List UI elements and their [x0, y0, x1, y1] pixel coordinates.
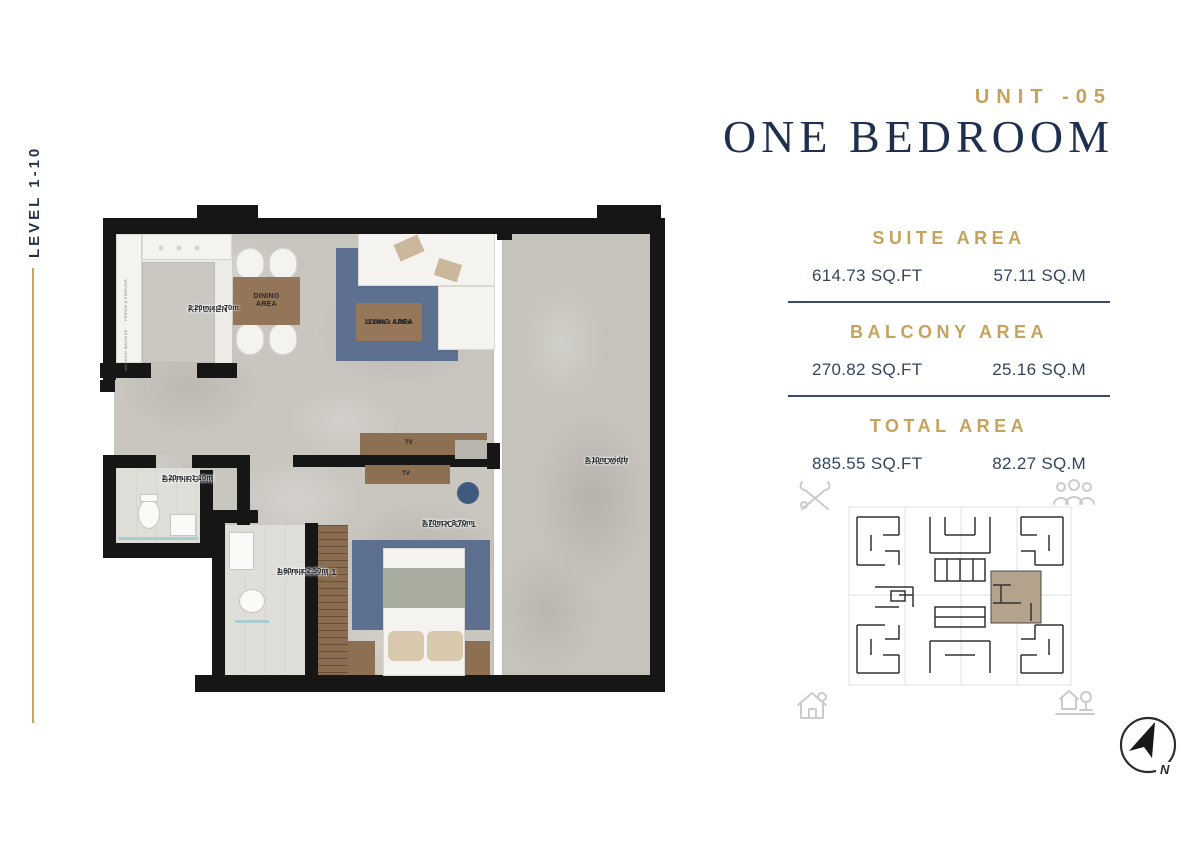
dining-chair [236, 323, 264, 355]
suite-area-sqft: 614.73 SQ.FT [812, 266, 922, 286]
toilet-tank [140, 494, 158, 502]
key-plan [835, 495, 1085, 695]
compass-north-label: N [1160, 762, 1170, 777]
page-title: ONE BEDROOM [723, 110, 1114, 163]
tv-label: TV [405, 440, 413, 446]
nightstand [464, 641, 490, 675]
balcony-area-section: BALCONY AREA 270.82 SQ.FT 25.16 SQ.M [788, 322, 1110, 397]
tv-label: TV [402, 471, 410, 477]
dining-chair [269, 248, 297, 280]
wall [100, 380, 115, 392]
room-dims-kitchen: 2.20m x 2.70m [188, 303, 239, 314]
suite-area-heading: SUITE AREA [788, 228, 1110, 249]
total-area-sqm: 82.27 SQ.M [992, 454, 1086, 474]
sofa-chaise [438, 286, 495, 350]
room-dims-bathroom: 2.20m x 1.10m [162, 473, 213, 484]
wall [487, 443, 500, 469]
toilet-icon [239, 589, 265, 613]
dining-chair [269, 323, 297, 355]
living-area-rug-label: LIVING AREA 5.20m x 4.00m [356, 303, 422, 341]
sink-icon [170, 514, 196, 536]
floorplan-brochure-page: LEVEL 1-10 UNIT -05 ONE BEDROOM SUITE AR… [0, 0, 1200, 852]
divider [788, 301, 1110, 303]
suite-area-sqm: 57.11 SQ.M [994, 266, 1086, 286]
room-dims-balcony: 3.10m width [585, 455, 628, 466]
nightstand [347, 641, 375, 675]
level-rail-line [32, 268, 34, 723]
sink-icon [229, 532, 254, 570]
room-dims-bedroom1: 3.70m x 3.70m [422, 518, 473, 529]
suite-area-section: SUITE AREA 614.73 SQ.FT 57.11 SQ.M [788, 228, 1110, 303]
community-park-icon [1053, 683, 1097, 726]
people-group-icon [1052, 478, 1096, 513]
shower-glass [235, 620, 269, 623]
kitchen-counter [116, 234, 142, 363]
wall [650, 218, 665, 690]
toilet-icon [138, 499, 160, 529]
wall [103, 218, 665, 234]
polo-mallets-icon [797, 478, 833, 517]
total-area-heading: TOTAL AREA [788, 416, 1110, 437]
dining-table: DINING AREA [233, 277, 300, 325]
area-summary-panel: SUITE AREA 614.73 SQ.FT 57.11 SQ.M BALCO… [788, 228, 1110, 489]
wall [112, 455, 156, 468]
room-label-dining: DINING AREA [245, 293, 289, 309]
dining-chair [236, 248, 264, 280]
stool [457, 482, 479, 504]
wall [597, 205, 661, 219]
shower-glass [118, 537, 198, 540]
unit-number-label: UNIT -05 [975, 86, 1112, 109]
bed-pillow [388, 631, 424, 661]
wall [212, 523, 225, 690]
balcony-area-sqft: 270.82 SQ.FT [812, 360, 922, 380]
kitchen-hob [142, 234, 232, 260]
house-icon [793, 688, 831, 727]
wall [212, 510, 258, 523]
wardrobe [318, 525, 348, 676]
highlighted-unit [991, 571, 1041, 623]
divider [788, 395, 1110, 397]
bed-pillow [427, 631, 463, 661]
level-range-label: LEVEL 1-10 [26, 146, 43, 258]
wall [497, 230, 512, 240]
wall [305, 523, 318, 690]
sofa [358, 231, 495, 286]
north-compass: N [1108, 706, 1188, 786]
wall [195, 675, 665, 692]
balcony-area-sqm: 25.16 SQ.M [992, 360, 1086, 380]
fridge-label: FRIDGE & FREEZER [123, 279, 128, 321]
room-dims-bathroom1: 1.60m x 2.50m [277, 566, 328, 577]
wall [103, 218, 116, 380]
washer-label: WASHING MACHINE [123, 329, 128, 371]
wall [103, 543, 213, 558]
wall [197, 205, 258, 219]
tv-panel [455, 440, 487, 459]
total-area-section: TOTAL AREA 885.55 SQ.FT 82.27 SQ.M [788, 416, 1110, 474]
compass-needle [1129, 722, 1155, 758]
balcony-area-heading: BALCONY AREA [788, 322, 1110, 343]
bed-runner [383, 568, 465, 608]
total-area-sqft: 885.55 SQ.FT [812, 454, 922, 474]
wall [197, 363, 237, 378]
room-dims-living: 5.20m x 4.00m [367, 319, 411, 326]
floor-plan: FRIDGE & FREEZER WASHING MACHINE KITCHEN… [100, 203, 667, 692]
